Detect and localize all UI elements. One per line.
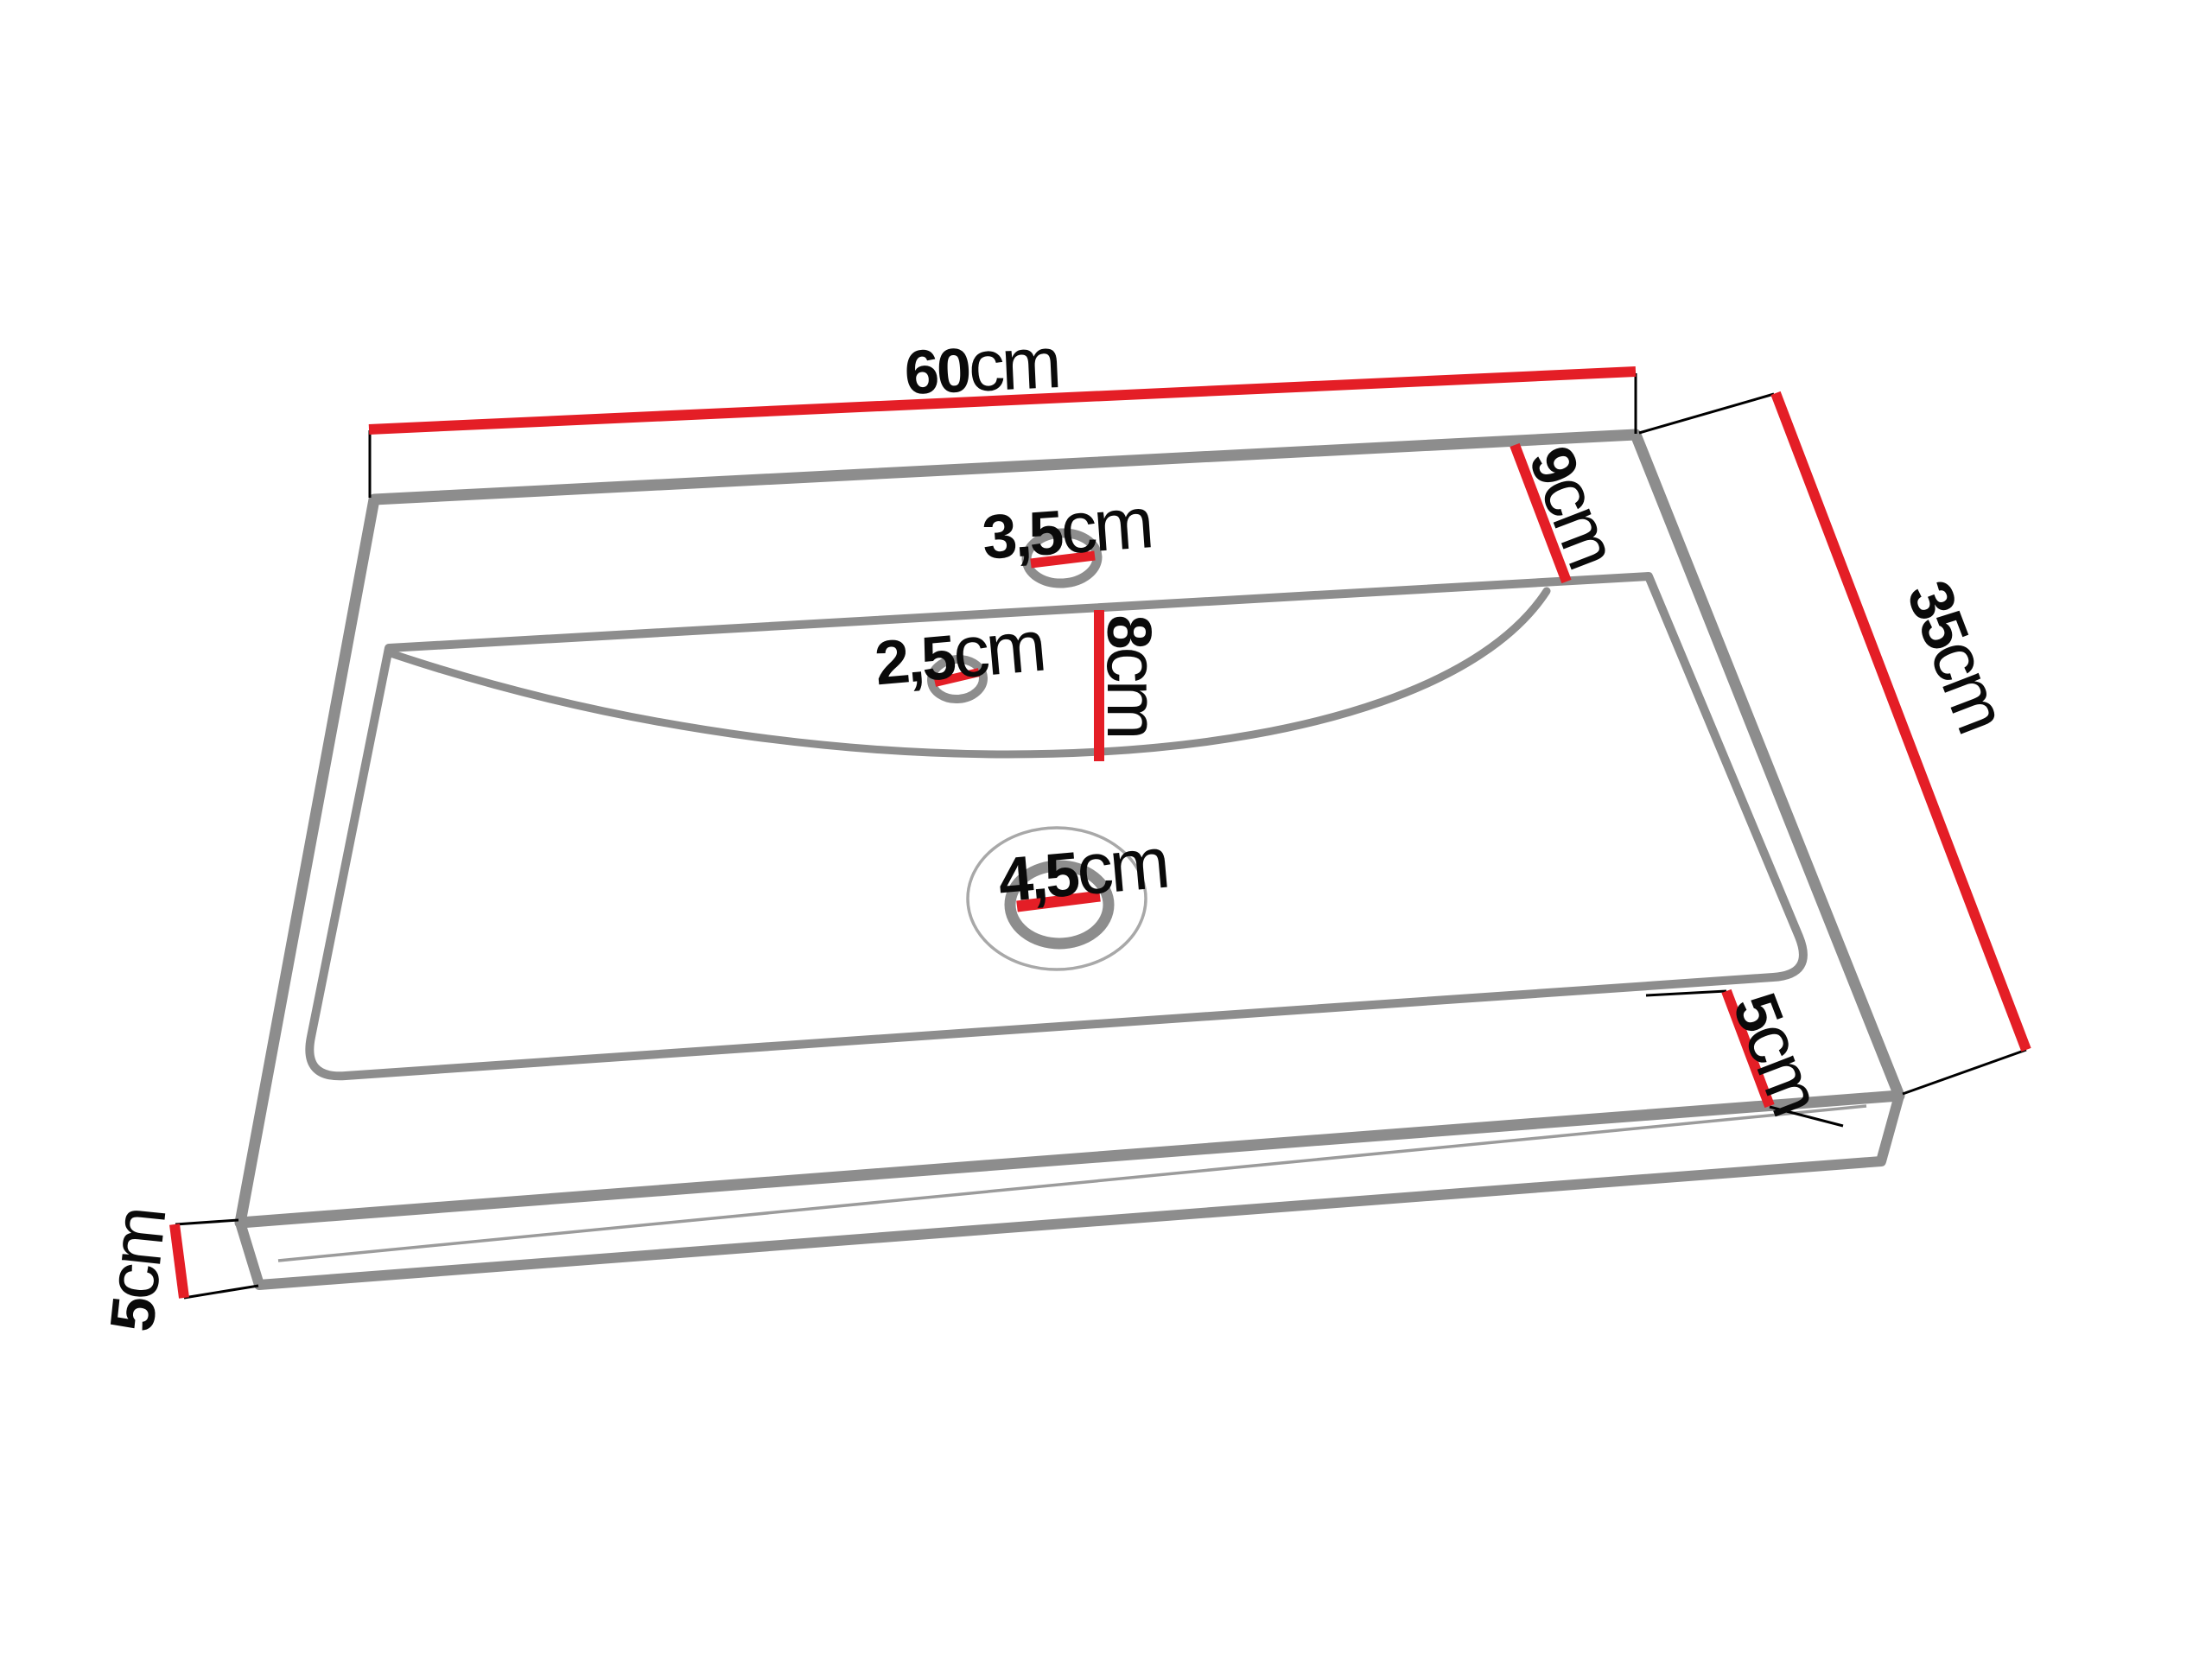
dim-unit: cm bbox=[950, 605, 1046, 694]
sink-dimension-diagram: 60cm 35cm 9cm 8cm 3,5cm 2,5cm 4,5cm bbox=[0, 0, 2212, 1659]
diagram-canvas: 60cm 35cm 9cm 8cm 3,5cm 2,5cm 4,5cm bbox=[0, 0, 2212, 1659]
dim-unit: cm bbox=[1073, 822, 1170, 911]
dim-tick bbox=[175, 1220, 238, 1224]
dim-unit: cm bbox=[967, 321, 1060, 407]
dim-value: 2,5 bbox=[872, 623, 958, 699]
dim-value: 4,5 bbox=[995, 840, 1082, 916]
dim-label-60cm: 60cm bbox=[903, 321, 1060, 410]
dim-unit: cm bbox=[1092, 647, 1173, 737]
dim-label-8cm: 8cm bbox=[1092, 614, 1173, 736]
dim-label-5cm-left: 5cm bbox=[87, 1205, 181, 1335]
dim-value: 60 bbox=[903, 336, 971, 408]
dim-value: 3,5 bbox=[980, 498, 1065, 572]
dim-tick bbox=[1639, 394, 1774, 433]
dim-label-35cm: 35cm bbox=[1891, 569, 2023, 741]
dim-tick bbox=[1903, 1050, 2026, 1094]
dim-value: 8 bbox=[1094, 614, 1163, 647]
dim-side-height: 5cm bbox=[87, 1205, 258, 1335]
dim-unit: cm bbox=[1058, 481, 1153, 569]
dim-tick bbox=[184, 1286, 258, 1298]
dim-unit: cm bbox=[91, 1205, 181, 1303]
